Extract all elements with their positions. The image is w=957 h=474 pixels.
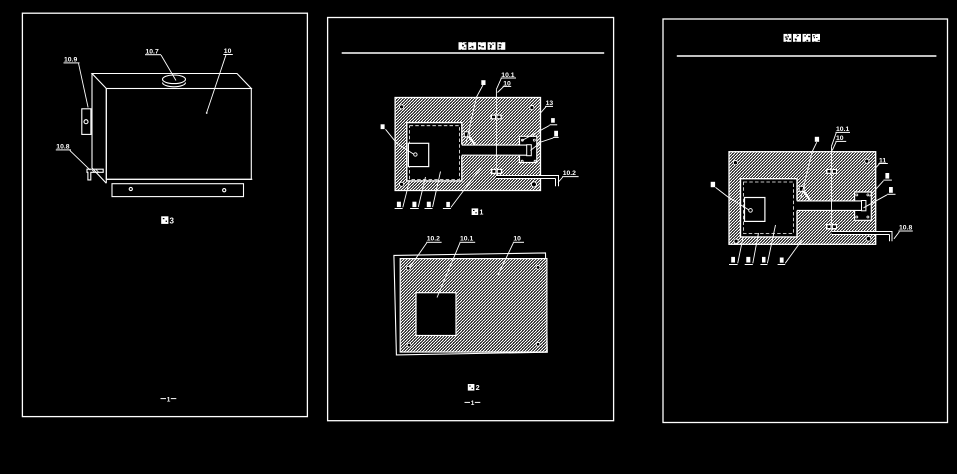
svg-text:1: 1 [471,400,475,407]
svg-text:1: 1 [479,208,483,217]
svg-text:10: 10 [513,236,521,243]
svg-text:1: 1 [167,396,171,403]
svg-text:2: 2 [476,383,480,392]
svg-text:10.1: 10.1 [460,236,473,243]
svg-text:3: 3 [170,217,175,226]
svg-text:10.8: 10.8 [899,225,912,232]
svg-text:10.2: 10.2 [427,236,440,243]
